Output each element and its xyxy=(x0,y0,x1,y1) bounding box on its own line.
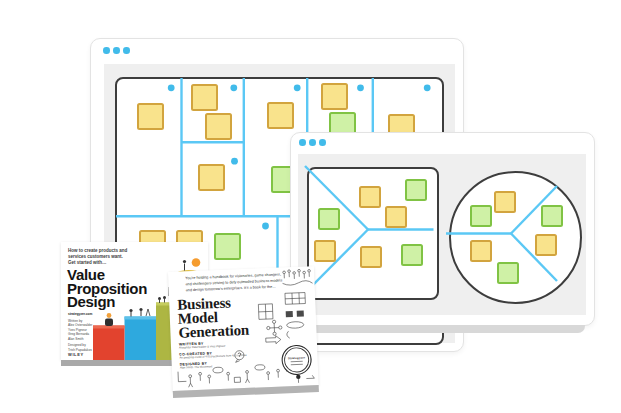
sticky-note-yellow[interactable] xyxy=(267,102,294,129)
sticky-note-yellow[interactable] xyxy=(198,164,225,191)
strategyzer-canvases-illustration: How to create products andservices custo… xyxy=(0,0,621,413)
bmg-credit-group: WRITTEN BYAlexander Osterwalder & Yves P… xyxy=(179,340,246,350)
sticky-note-yellow[interactable] xyxy=(385,206,407,228)
window-control-dot xyxy=(123,47,130,54)
vpd-title-line: Design xyxy=(67,295,147,309)
sticky-note-green[interactable] xyxy=(470,205,492,227)
sticky-note-yellow[interactable] xyxy=(535,234,557,256)
section-dot xyxy=(357,84,364,91)
vpd-tagline: How to create products andservices custo… xyxy=(68,248,154,266)
vpd-credit-line: Greg Bernarda xyxy=(68,332,92,336)
section-dot xyxy=(168,84,175,91)
bmg-credits: WRITTEN BYAlexander Osterwalder & Yves P… xyxy=(179,340,247,373)
window-control-dot xyxy=(103,47,110,54)
sticky-note-yellow[interactable] xyxy=(360,246,382,268)
sticky-note-yellow[interactable] xyxy=(470,240,492,262)
vpd-title: ValuePropositionDesign xyxy=(67,268,147,309)
sticky-note-yellow[interactable] xyxy=(359,186,381,208)
vpd-credits: strategyzer.com Written byAlex Osterwald… xyxy=(68,312,92,352)
sticky-note-yellow[interactable] xyxy=(314,240,336,262)
section-dot xyxy=(294,84,301,91)
window-control-dot xyxy=(113,47,120,54)
sticky-note-yellow[interactable] xyxy=(137,103,164,130)
bmg-title: BusinessModelGeneration xyxy=(177,295,249,340)
sticky-note-yellow[interactable] xyxy=(321,83,348,110)
section-dot xyxy=(262,223,269,230)
sticky-note-green[interactable] xyxy=(405,179,427,201)
value-proposition-canvas-window xyxy=(290,132,595,326)
vpd-publisher: WILEY xyxy=(68,352,84,357)
strategyzer-badge-icon: Strategyzer xyxy=(281,344,312,375)
sticky-note-yellow[interactable] xyxy=(191,84,218,111)
canvas-overlay xyxy=(290,132,593,324)
sticky-note-green[interactable] xyxy=(318,208,340,230)
bmg-credit-group: DESIGNED BYAlan Smith, The Movement xyxy=(180,360,247,370)
sticky-note-green[interactable] xyxy=(541,205,563,227)
section-dot xyxy=(424,84,431,91)
badge-label: Strategyzer xyxy=(288,355,306,360)
section-dot xyxy=(231,158,238,165)
sticky-note-yellow[interactable] xyxy=(205,113,232,140)
sticky-note-green[interactable] xyxy=(497,262,519,284)
window-traffic-dots xyxy=(103,47,130,54)
book-business-model-generation[interactable]: You're holding a handbook for visionarie… xyxy=(168,266,319,391)
vpd-credit-line: strategyzer.com xyxy=(68,312,92,316)
sticky-note-green[interactable] xyxy=(401,244,423,266)
section-dot xyxy=(230,84,237,91)
badge-line xyxy=(291,363,303,364)
bmg-credit-group: CO-CREATED BYAn amazing crowd of 470 pra… xyxy=(179,350,246,360)
sticky-note-green[interactable] xyxy=(214,233,241,260)
bmg-title-line: Generation xyxy=(178,323,249,340)
sticky-note-yellow[interactable] xyxy=(494,191,516,213)
badge-line xyxy=(291,361,303,362)
bmg-tagline: You're holding a handbook for visionarie… xyxy=(185,271,310,293)
